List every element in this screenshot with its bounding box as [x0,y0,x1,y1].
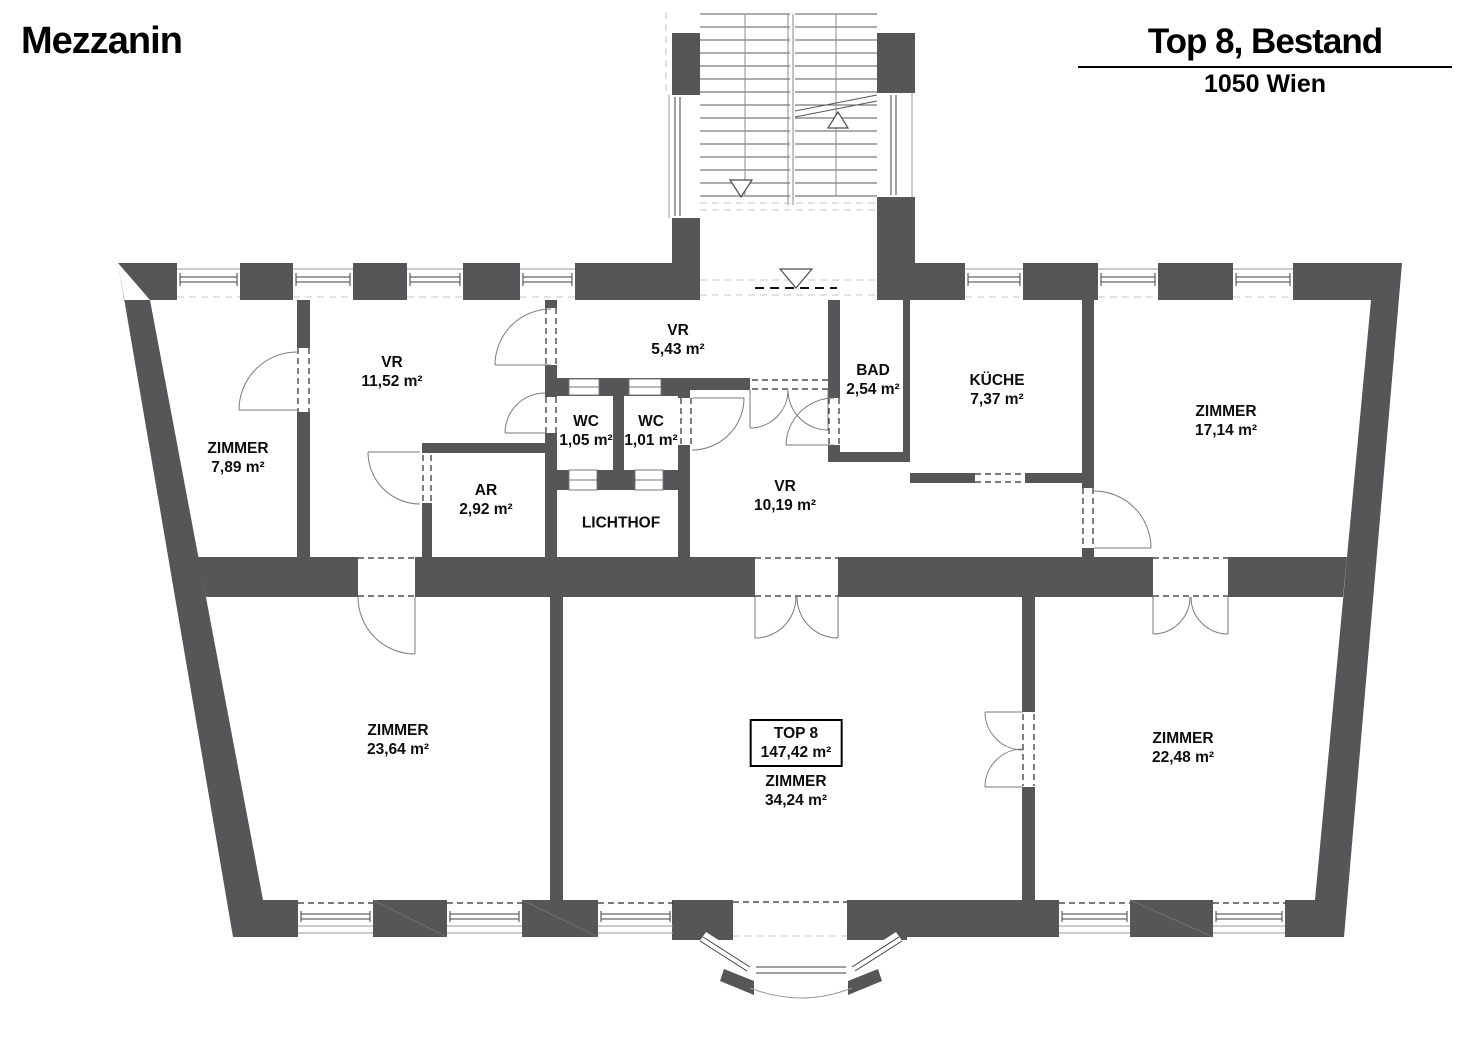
room-label-zimmer-2364: ZIMMER 23,64 m² [367,721,429,759]
door-bad [786,398,834,445]
door-wc105 [505,393,545,433]
room-area: 10,19 m² [754,496,816,515]
room-label-zimmer-789: ZIMMER 7,89 m² [207,439,268,477]
room-name: WC [559,412,612,431]
room-area: 1,01 m² [624,431,677,450]
room-label-ar: AR 2,92 m² [459,481,512,519]
room-name: KÜCHE [969,371,1024,390]
room-name: BAD [846,361,899,380]
stairs-down-arrow-icon [730,180,752,197]
door-vr543-vr1152 [495,309,551,365]
room-label-zimmer-1714: ZIMMER 17,14 m² [1195,402,1257,440]
room-area: 7,89 m² [207,458,268,477]
room-name: ZIMMER [207,439,268,458]
room-label-bad: BAD 2,54 m² [846,361,899,399]
room-name: LICHTHOF [582,514,660,533]
door-vr543-vr1019-left [750,390,788,428]
door-zimmer-3424-left [755,597,796,638]
door-wc101 [692,398,744,450]
room-name: VR [754,477,816,496]
door-zimmer-2248-right [1191,597,1228,634]
room-label-zimmer-2248: ZIMMER 22,48 m² [1152,729,1214,767]
door-ar [368,452,420,504]
room-area: 2,92 m² [459,500,512,519]
door-zimmer-789 [239,352,297,410]
door-zimmer-3424-right [797,597,838,638]
unit-name: TOP 8 [761,724,832,743]
room-name: VR [651,321,704,340]
stairs-up-arrow-icon [828,112,848,128]
room-area: 22,48 m² [1152,748,1214,767]
room-area: 34,24 m² [765,791,827,810]
room-name: ZIMMER [367,721,429,740]
unit-summary-box: TOP 8 147,42 m² [750,719,843,767]
door-z3424-z2248-lower [985,749,1023,787]
unit-area: 147,42 m² [761,743,832,762]
room-label-vr-1019: VR 10,19 m² [754,477,816,515]
room-label-zimmer-3424: ZIMMER 34,24 m² [765,772,827,810]
room-area: 1,05 m² [559,431,612,450]
door-z3424-z2248-upper [985,712,1023,750]
door-zimmer-2248-left [1153,597,1190,634]
room-name: ZIMMER [1195,402,1257,421]
bay-window [700,937,902,998]
room-area: 17,14 m² [1195,421,1257,440]
opening-dashes [177,12,1293,936]
room-name: AR [459,481,512,500]
room-label-wc-101: WC 1,01 m² [624,412,677,450]
room-label-vr-1152: VR 11,52 m² [361,353,422,391]
staircase [700,14,877,205]
room-name: VR [361,353,422,372]
room-area: 2,54 m² [846,380,899,399]
floorplan-drawing [0,0,1461,1064]
entrance-arrow-icon [780,269,812,288]
room-name: WC [624,412,677,431]
room-area: 11,52 m² [361,372,422,391]
door-vr543-vr1019-right [788,390,828,430]
room-name: ZIMMER [765,772,827,791]
door-zimmer-1714 [1094,491,1151,548]
room-label-wc-105: WC 1,05 m² [559,412,612,450]
floorplan-page: Mezzanin Top 8, Bestand 1050 Wien [0,0,1461,1064]
room-label-lichthof: LICHTHOF [582,514,660,533]
room-label-vr-543: VR 5,43 m² [651,321,704,359]
windows [177,93,1293,933]
room-area: 23,64 m² [367,740,429,759]
room-name: ZIMMER [1152,729,1214,748]
room-area: 7,37 m² [969,390,1024,409]
room-label-kueche: KÜCHE 7,37 m² [969,371,1024,409]
door-zimmer-2364 [358,597,415,654]
room-area: 5,43 m² [651,340,704,359]
